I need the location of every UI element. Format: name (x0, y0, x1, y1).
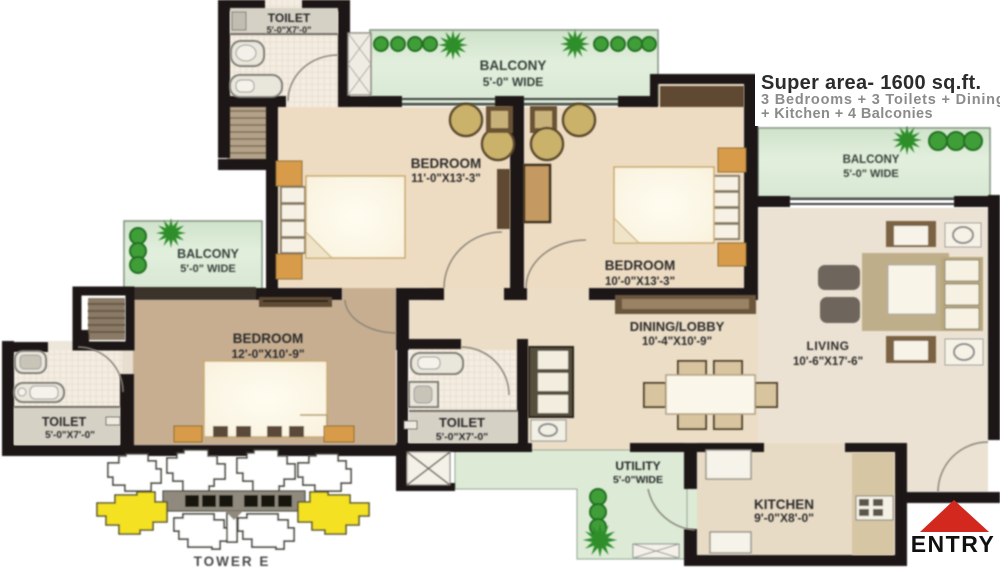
svg-text:BEDROOM: BEDROOM (411, 156, 482, 171)
svg-text:BALCONY: BALCONY (843, 154, 900, 166)
svg-text:KITCHEN: KITCHEN (754, 497, 814, 512)
svg-text:UTILITY: UTILITY (615, 459, 660, 473)
svg-text:10'-4"X10'-9": 10'-4"X10'-9" (642, 336, 712, 348)
svg-text:10'-0"X13'-3": 10'-0"X13'-3" (605, 276, 675, 288)
svg-text:12'-0"X10'-9": 12'-0"X10'-9" (231, 347, 304, 361)
svg-text:+ Kitchen + 4 Balconies: + Kitchen + 4 Balconies (761, 106, 933, 122)
svg-text:10'-6"X17'-6": 10'-6"X17'-6" (793, 356, 863, 368)
svg-text:5'-0"X7'-0": 5'-0"X7'-0" (45, 430, 95, 441)
svg-text:BEDROOM: BEDROOM (233, 331, 304, 346)
svg-text:TOILET: TOILET (42, 415, 87, 429)
svg-text:9'-0"X8'-0": 9'-0"X8'-0" (754, 511, 814, 525)
svg-text:TOILET: TOILET (268, 11, 311, 25)
svg-text:5'-0"WIDE: 5'-0"WIDE (613, 474, 663, 486)
svg-text:5'-0" WIDE: 5'-0" WIDE (843, 168, 899, 180)
svg-text:5'-0"X7'-0": 5'-0"X7'-0" (436, 431, 488, 443)
svg-text:TOWER E: TOWER E (194, 554, 271, 568)
svg-text:LIVING: LIVING (806, 339, 849, 353)
svg-text:Super area- 1600 sq.ft.: Super area- 1600 sq.ft. (761, 72, 981, 94)
svg-text:BEDROOM: BEDROOM (605, 258, 676, 273)
svg-text:DINING/LOBBY: DINING/LOBBY (630, 319, 725, 334)
svg-text:5'-0" WIDE: 5'-0" WIDE (180, 263, 236, 275)
svg-text:BALCONY: BALCONY (177, 247, 239, 261)
svg-text:5'-0" WIDE: 5'-0" WIDE (483, 75, 544, 89)
svg-text:BALCONY: BALCONY (480, 58, 547, 73)
svg-text:ENTRY: ENTRY (911, 531, 996, 557)
svg-text:TOILET: TOILET (439, 415, 485, 430)
svg-text:5'-0"X7'-0": 5'-0"X7'-0" (267, 25, 312, 35)
svg-text:11'-0"X13'-3": 11'-0"X13'-3" (411, 173, 480, 185)
